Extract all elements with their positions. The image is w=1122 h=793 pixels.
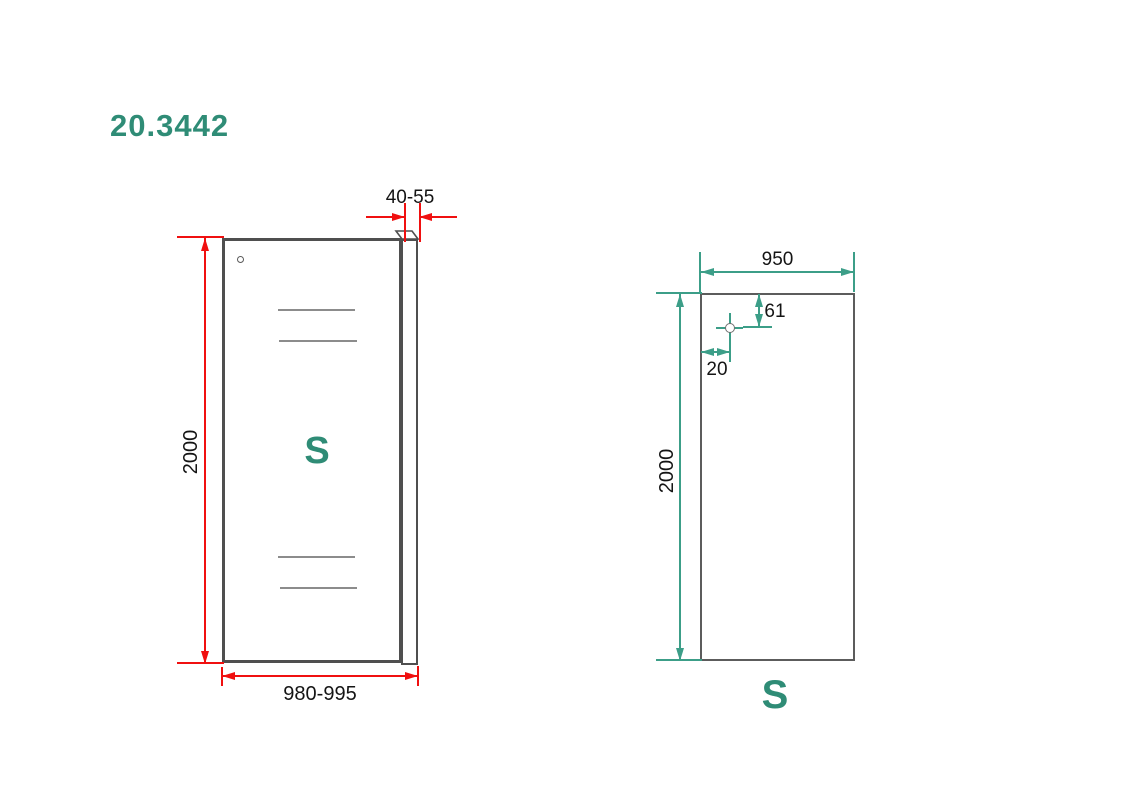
- glass-line: [279, 340, 357, 342]
- glass-line: [278, 309, 355, 311]
- dim-arrow-right-icon: [717, 348, 730, 356]
- side-dim-hole-edge-label: 20: [701, 359, 733, 381]
- dim-line: [223, 675, 417, 677]
- front-dim-profile-width-label: 40-55: [360, 187, 460, 209]
- dim-line: [679, 294, 681, 661]
- front-dim-width-label: 980-995: [245, 683, 395, 706]
- dim-ref-line: [743, 326, 772, 328]
- dim-line: [204, 238, 206, 664]
- dim-arrow-right-icon: [405, 672, 418, 680]
- wall-profile: [401, 239, 418, 665]
- dim-arrow-left-icon: [701, 268, 714, 276]
- technical-drawing-sheet: 20.3442 S 2000 40-55: [0, 0, 1122, 793]
- side-dim-hole-top-label: 61: [759, 301, 791, 323]
- glass-line: [278, 556, 355, 558]
- dim-arrow-right-icon: [841, 268, 854, 276]
- dim-arrow-left-icon: [701, 348, 714, 356]
- front-dim-height-label: 2000: [180, 412, 202, 492]
- drawing-title: 20.3442: [110, 108, 229, 144]
- dim-arrow-down-icon: [676, 648, 684, 661]
- front-hole: [237, 256, 244, 263]
- side-view-label: S: [752, 673, 798, 717]
- dim-arrow-up-icon: [201, 238, 209, 251]
- dim-arrow-down-icon: [201, 651, 209, 664]
- dim-arrow-right-icon: [392, 213, 405, 221]
- dim-arrow-left-icon: [419, 213, 432, 221]
- front-view-label: S: [294, 429, 340, 473]
- dim-line: [701, 271, 854, 273]
- side-dim-width-label: 950: [740, 249, 815, 271]
- dim-arrow-up-icon: [676, 294, 684, 307]
- dim-arrow-left-icon: [222, 672, 235, 680]
- side-dim-height-label: 2000: [656, 431, 678, 511]
- side-hole: [725, 323, 735, 333]
- glass-line: [280, 587, 357, 589]
